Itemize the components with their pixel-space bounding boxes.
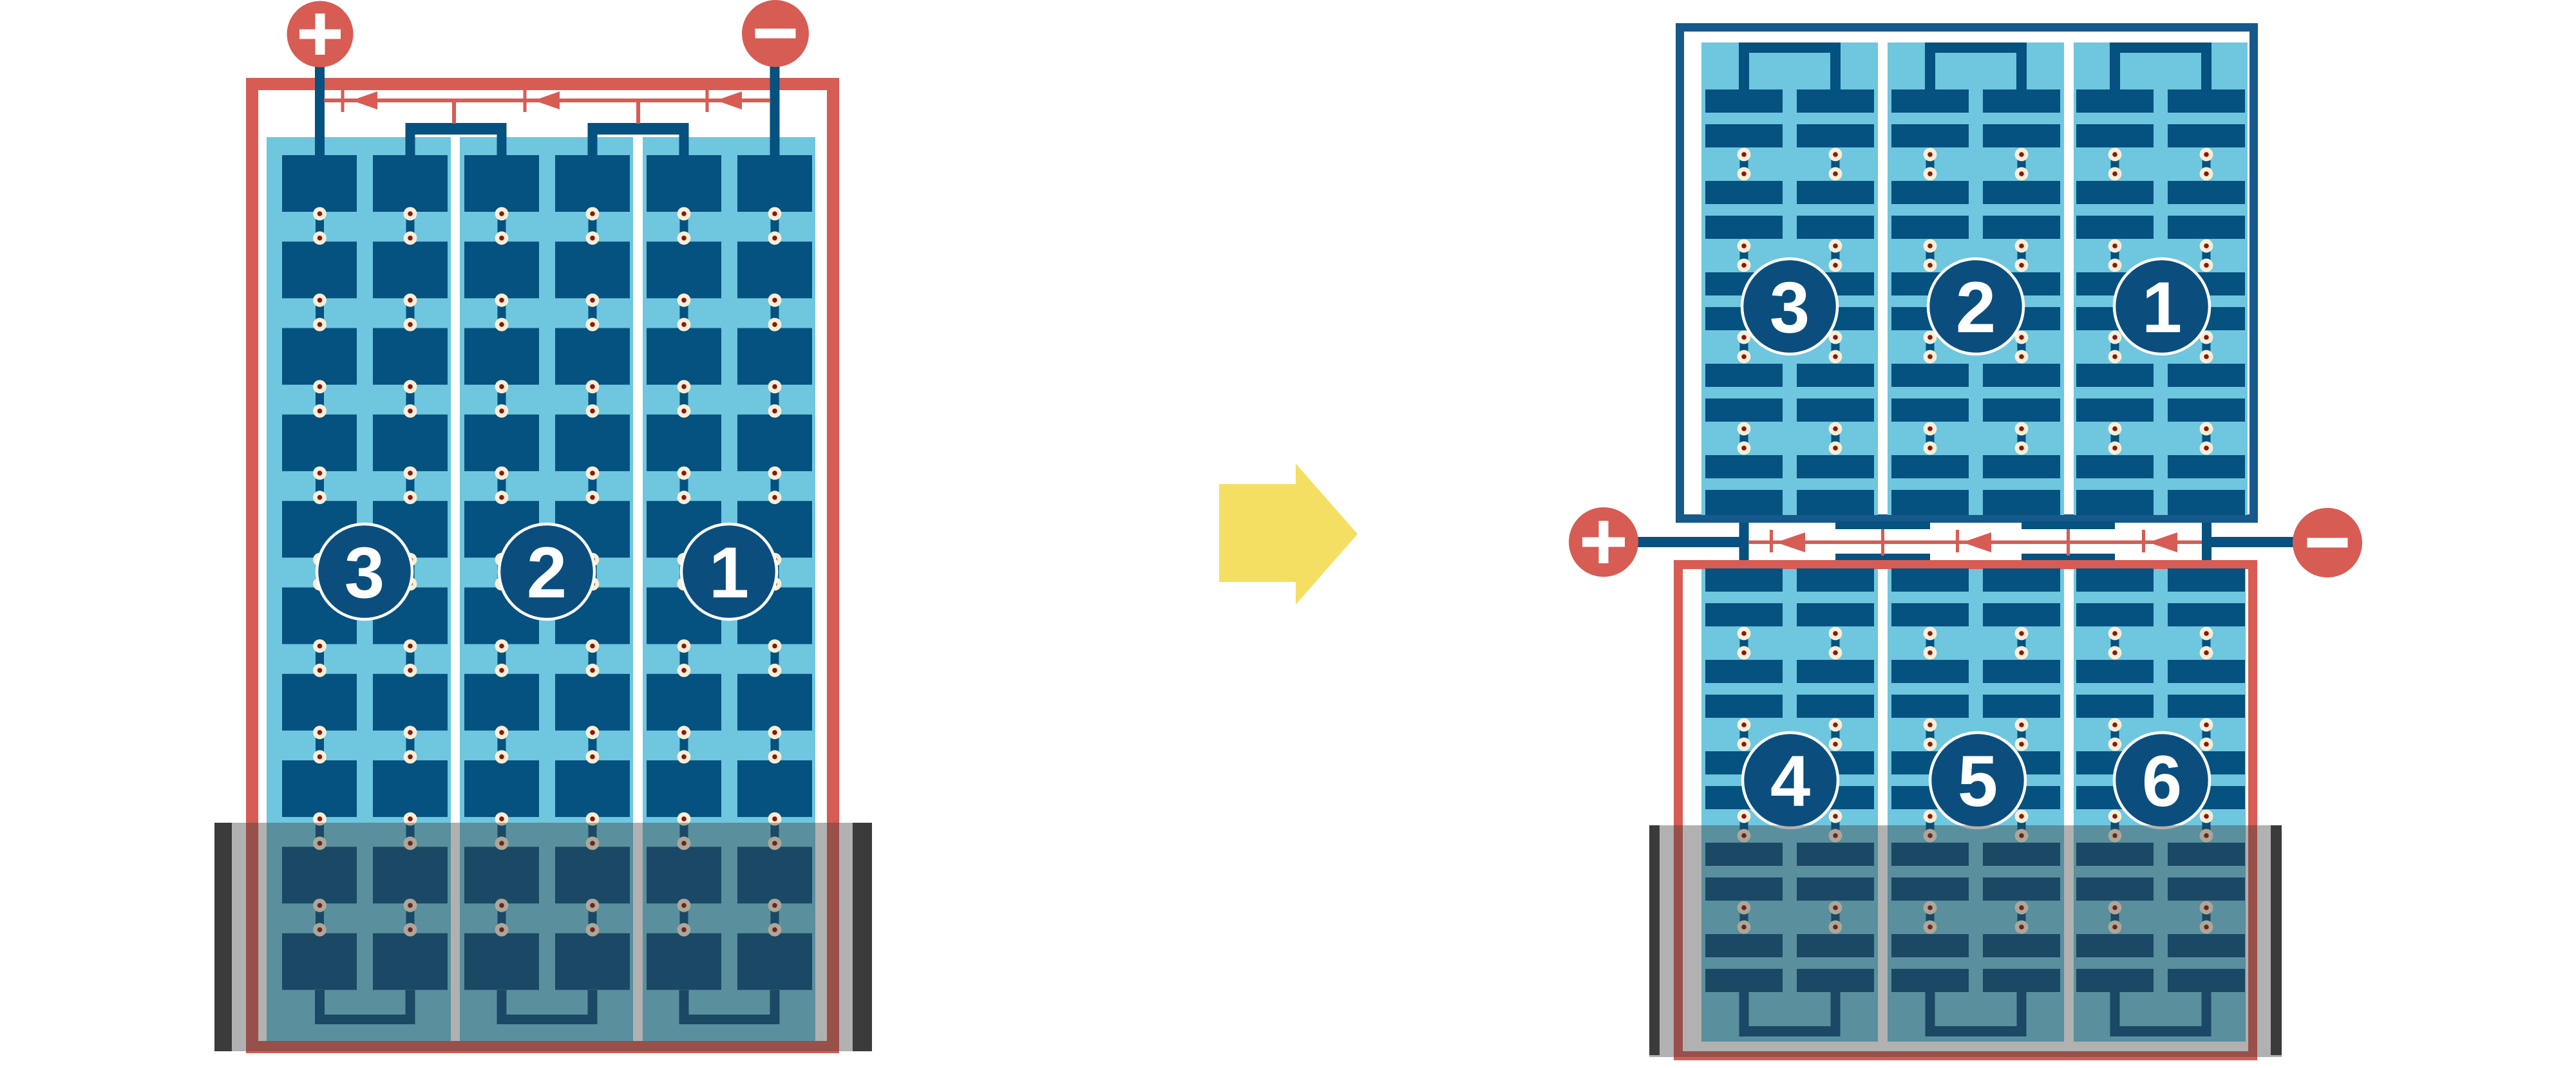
svg-text:1: 1	[709, 532, 749, 613]
svg-text:4: 4	[1770, 741, 1810, 821]
svg-text:5: 5	[1958, 741, 1998, 821]
svg-text:3: 3	[345, 532, 384, 613]
svg-text:2: 2	[527, 532, 567, 613]
svg-text:3: 3	[1770, 267, 1810, 348]
svg-text:6: 6	[2142, 741, 2182, 821]
svg-text:1: 1	[2142, 267, 2182, 348]
svg-text:2: 2	[1956, 267, 1996, 348]
